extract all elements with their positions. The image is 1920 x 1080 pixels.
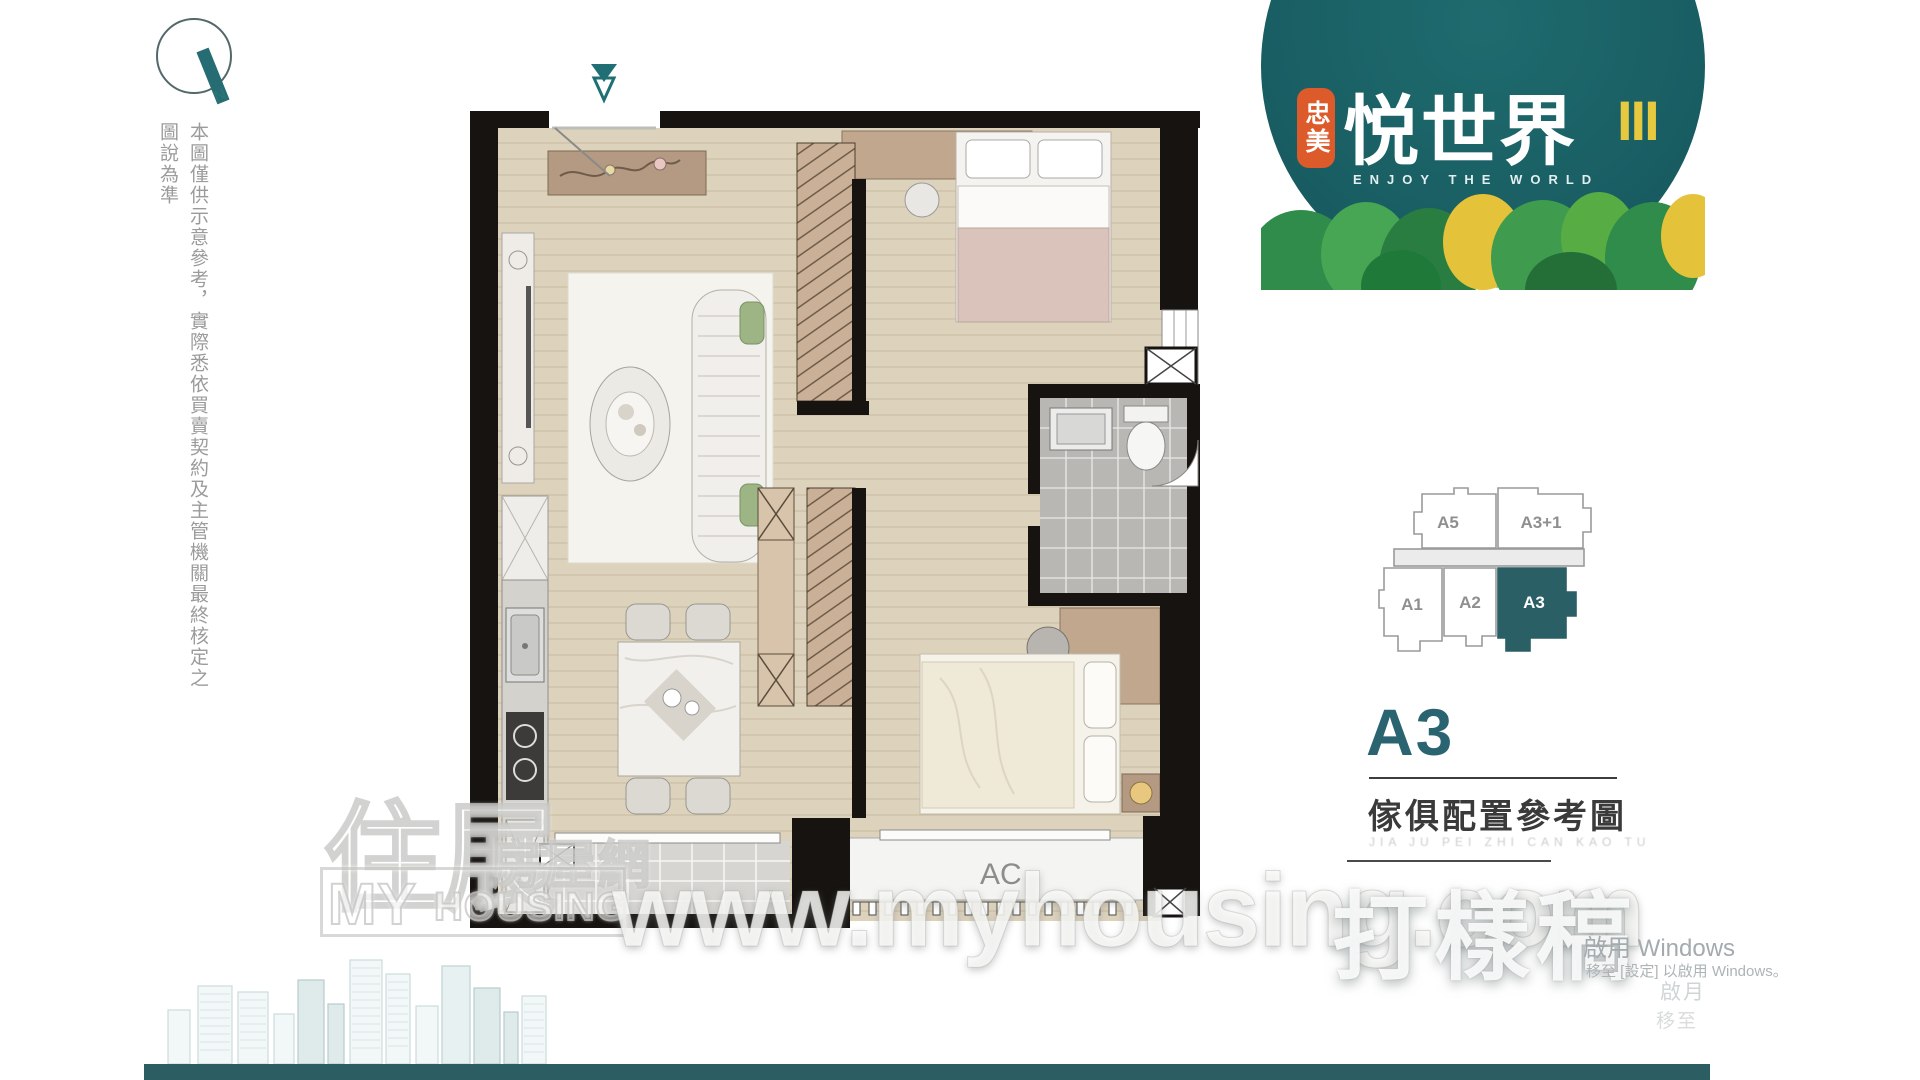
wardrobe-lower (807, 488, 855, 706)
brand-en-my: MY (328, 871, 417, 938)
keyplan-label-a5: A5 (1437, 513, 1459, 532)
keyplan-label-a3plus1: A3+1 (1520, 513, 1561, 532)
desk-chair (905, 183, 939, 217)
city-skyline (140, 952, 560, 1064)
dining-chair (686, 604, 730, 640)
logo-subtitle: ENJOY THE WORLD (1353, 172, 1599, 187)
divider-line (1369, 777, 1617, 779)
key-plan: A5 A3+1 A1 A2 A3 (1378, 486, 1598, 661)
disclaimer-text: 本圖僅供示意參考，實際悉依買賣契約及主管機關最終核定之圖說為準 (152, 122, 212, 702)
blanket (958, 228, 1109, 322)
dining-chair (686, 778, 730, 814)
pillow (1084, 662, 1116, 728)
pillow (1038, 140, 1102, 178)
unit-caption-sub: JIA JU PEI ZHI CAN KAO TU (1369, 835, 1650, 849)
toilet (1124, 406, 1168, 422)
compass: N (156, 18, 236, 98)
bottom-accent-bar (144, 1064, 1710, 1080)
keyplan-corridor (1394, 549, 1584, 566)
dining-chair (626, 778, 670, 814)
myhousing-brand-watermark: 住展 房屋網 MY HOUSING (318, 775, 628, 950)
project-logo: 忠美 悦世界 III ENJOY THE WORLD (1261, 0, 1705, 290)
keyplan-label-a1: A1 (1401, 595, 1423, 614)
bathroom (1040, 398, 1195, 593)
windows-activation-title: 啟用 Windows (1583, 928, 1735, 963)
unit-title: A3 (1366, 694, 1454, 770)
cushion (740, 302, 764, 344)
keyplan-label-a3: A3 (1523, 593, 1545, 612)
logo-title: 悦世界 (1343, 70, 1577, 180)
pillow (966, 140, 1030, 178)
logo-badge: 忠美 (1297, 88, 1335, 168)
wardrobe-upper (797, 143, 855, 401)
keyplan-label-a2: A2 (1459, 593, 1481, 612)
windows-activation-ghost2: 移至 (1656, 1006, 1698, 1033)
lamp (1130, 782, 1152, 804)
brand-en-housing: HOUSING (434, 885, 628, 930)
entry-arrow-icon (591, 64, 617, 100)
cabinet-column (758, 488, 794, 706)
unit-caption: 傢俱配置參考圖 (1368, 789, 1627, 838)
tv (526, 286, 531, 428)
compass-north-label: N (209, 84, 231, 107)
pillow (1084, 736, 1116, 802)
windows-activation-ghost1: 啟月 (1660, 976, 1706, 1006)
logo-roman-numeral: III (1617, 88, 1658, 153)
dining-chair (626, 604, 670, 640)
